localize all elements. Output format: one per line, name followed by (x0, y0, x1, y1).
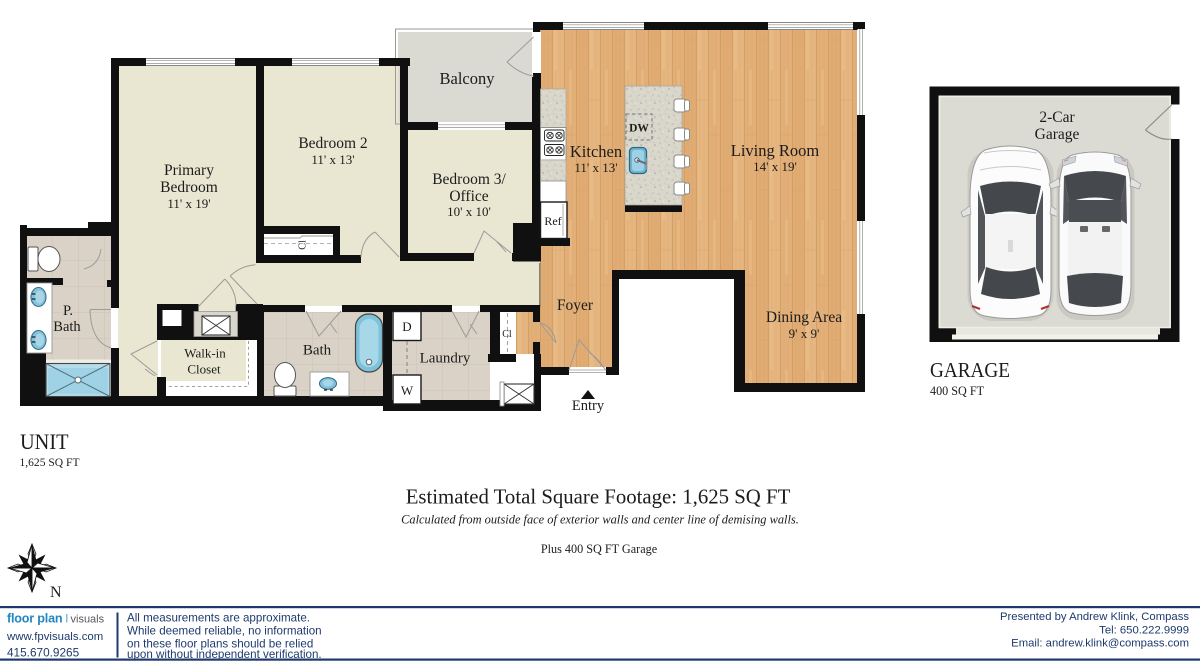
svg-text:400 SQ FT: 400 SQ FT (930, 383, 984, 398)
svg-text:Kitchen: Kitchen (570, 142, 622, 161)
svg-text:Ref: Ref (544, 214, 561, 228)
svg-text:Cl: Cl (502, 329, 512, 340)
svg-text:D: D (402, 319, 411, 334)
svg-text:Office: Office (449, 188, 488, 205)
svg-text:Estimated Total Square Footage: Estimated Total Square Footage: 1,625 SQ… (406, 486, 791, 509)
svg-text:Laundry: Laundry (420, 351, 471, 367)
svg-text:All measurements are approxima: All measurements are approximate. (127, 612, 310, 625)
svg-text:2-Car: 2-Car (1039, 109, 1075, 126)
svg-text:Bedroom: Bedroom (160, 179, 218, 196)
svg-text:9' x 9': 9' x 9' (789, 326, 820, 341)
svg-text:Email: andrew.klink@compass.co: Email: andrew.klink@compass.com (1011, 638, 1189, 650)
svg-text:visuals: visuals (71, 614, 105, 626)
svg-text:GARAGE: GARAGE (930, 358, 1010, 382)
svg-text:1,625 SQ FT: 1,625 SQ FT (20, 455, 81, 469)
svg-text:N: N (50, 584, 62, 601)
svg-text:Closet: Closet (187, 362, 221, 377)
svg-text:Bath: Bath (303, 343, 332, 359)
svg-text:Living Room: Living Room (731, 141, 820, 160)
svg-text:P.: P. (63, 303, 73, 319)
svg-text:11' x 13': 11' x 13' (574, 160, 617, 175)
svg-text:Balcony: Balcony (440, 69, 496, 88)
svg-text:www.fpvisuals.com: www.fpvisuals.com (6, 631, 103, 643)
svg-text:Walk-in: Walk-in (184, 346, 226, 361)
svg-text:Bedroom 3/: Bedroom 3/ (432, 171, 506, 188)
svg-text:11' x 13': 11' x 13' (311, 152, 354, 167)
svg-text:Dining Area: Dining Area (766, 309, 842, 326)
svg-text:Bath: Bath (53, 319, 81, 335)
svg-text:Primary: Primary (164, 162, 214, 179)
svg-text:Tel: 650.222.9999: Tel: 650.222.9999 (1099, 624, 1189, 636)
svg-text:11' x 19': 11' x 19' (167, 196, 210, 211)
svg-text:Plus 400 SQ FT Garage: Plus 400 SQ FT Garage (541, 542, 657, 556)
svg-text:415.670.9265: 415.670.9265 (7, 646, 80, 660)
svg-text:Foyer: Foyer (557, 297, 594, 314)
svg-text:14' x 19': 14' x 19' (753, 159, 797, 174)
svg-text:While deemed reliable, no info: While deemed reliable, no information (127, 625, 322, 638)
svg-text:10' x 10': 10' x 10' (447, 204, 491, 219)
svg-text:DW: DW (629, 123, 649, 135)
svg-text:upon without independent verif: upon without independent verification. (127, 648, 322, 661)
svg-text:W: W (401, 383, 414, 398)
svg-text:Presented by Andrew Klink, Com: Presented by Andrew Klink, Compass (1000, 611, 1189, 623)
svg-text:UNIT: UNIT (20, 430, 69, 454)
svg-text:floor plan: floor plan (7, 612, 62, 626)
svg-text:Calculated from outside face o: Calculated from outside face of exterior… (401, 513, 799, 527)
svg-text:Bedroom 2: Bedroom 2 (298, 135, 367, 152)
svg-text:Entry: Entry (572, 398, 605, 414)
svg-text:Garage: Garage (1035, 126, 1080, 143)
svg-text:Cl: Cl (298, 240, 309, 250)
